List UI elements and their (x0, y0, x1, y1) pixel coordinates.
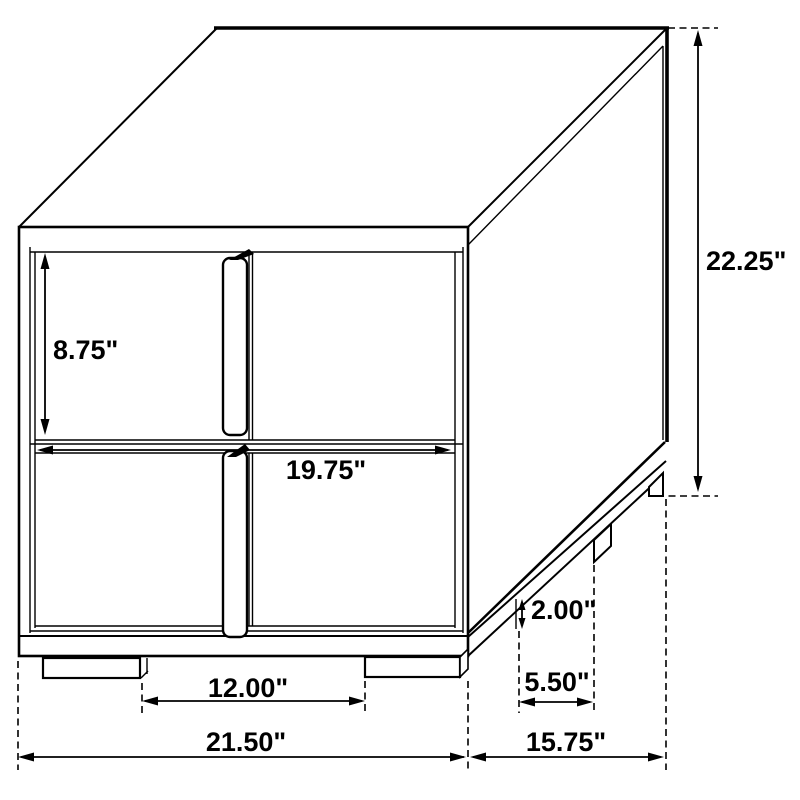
arrowhead-left (142, 697, 158, 706)
dimension-base-height: 2.00" (519, 595, 597, 629)
arrowhead-down (519, 618, 526, 629)
front-left-leg (43, 658, 140, 678)
dimension-diagram-page: 8.75" 19.75" 22.25" 2.00" 5.50" 12.00" (0, 0, 800, 800)
dim-label-side-leg-spacing: 5.50" (524, 667, 589, 697)
side-middle-leg (594, 524, 611, 562)
dimension-overall-width: 21.50" (18, 727, 466, 762)
arrowhead-right (648, 753, 664, 762)
dim-label-overall-depth: 15.75" (526, 727, 606, 757)
dim-label-drawer-width: 19.75" (286, 455, 366, 485)
arrowhead-up (694, 30, 703, 46)
top-face (19, 28, 667, 227)
arrowhead-right (577, 698, 593, 707)
dim-label-overall-width: 21.50" (206, 727, 286, 757)
front-left-leg-chamfer (141, 671, 148, 678)
nightstand-dimension-diagram: 8.75" 19.75" 22.25" 2.00" 5.50" 12.00" (0, 0, 800, 800)
arrowhead-left (18, 753, 34, 762)
lower-drawer-handle (223, 451, 247, 637)
arrowhead-right (349, 697, 365, 706)
dimension-side-leg-spacing: 5.50" (519, 667, 593, 707)
arrowhead-left (470, 753, 486, 762)
side-plinth-bottom (468, 479, 659, 656)
dimension-overall-height: 22.25" (694, 30, 787, 492)
upper-drawer-handle (223, 258, 247, 435)
dim-label-overall-height: 22.25" (706, 246, 786, 276)
arrowhead-down (694, 476, 703, 492)
dimension-overall-depth: 15.75" (470, 727, 664, 762)
arrowhead-left (519, 698, 535, 707)
side-back-leg (649, 473, 663, 496)
dim-label-front-leg-spacing: 12.00" (208, 673, 288, 703)
arrowhead-right (450, 753, 466, 762)
dimension-front-leg-spacing: 12.00" (142, 673, 365, 706)
dim-label-drawer-height: 8.75" (53, 335, 118, 365)
dim-label-base-height: 2.00" (531, 595, 596, 625)
front-right-leg (365, 657, 460, 677)
